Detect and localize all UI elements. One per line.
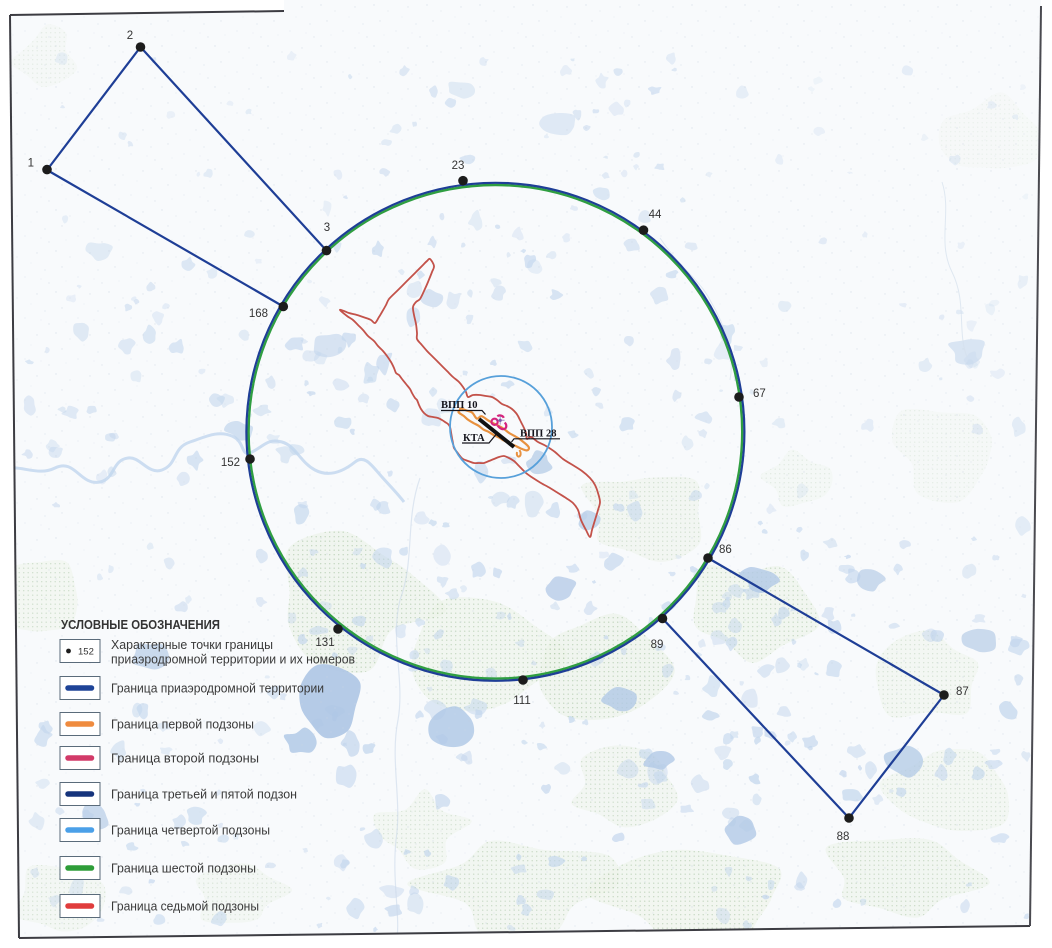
svg-text:23: 23 [452,160,465,172]
svg-text:152: 152 [78,647,94,658]
svg-text:87: 87 [956,686,969,698]
svg-text:КТА: КТА [463,433,485,444]
svg-text:ВПП 10: ВПП 10 [441,400,477,411]
svg-text:приаэродромной территории и их: приаэродромной территории и их номеров [111,653,355,667]
svg-text:Граница первой подзоны: Граница первой подзоны [111,718,254,732]
svg-text:1: 1 [28,158,34,170]
svg-text:89: 89 [651,639,664,651]
svg-text:111: 111 [513,695,530,707]
svg-text:Граница приаэродромной террито: Граница приаэродромной территории [111,682,324,696]
svg-text:44: 44 [649,209,662,221]
svg-text:УСЛОВНЫЕ ОБОЗНАЧЕНИЯ: УСЛОВНЫЕ ОБОЗНАЧЕНИЯ [61,617,220,632]
svg-text:Граница третьей и пятой подзон: Граница третьей и пятой подзон [111,788,297,802]
svg-text:Граница шестой подзоны: Граница шестой подзоны [111,862,256,876]
svg-text:Граница второй подзоны: Граница второй подзоны [111,752,259,766]
svg-text:Характерные точки границы: Характерные точки границы [111,638,273,652]
svg-text:Граница седьмой подзоны: Граница седьмой подзоны [111,900,259,914]
svg-text:3: 3 [324,222,330,234]
svg-text:ВПП 28: ВПП 28 [520,429,556,440]
svg-text:2: 2 [127,30,133,42]
svg-text:131: 131 [315,637,334,649]
svg-text:Граница четвертой подзоны: Граница четвертой подзоны [111,824,270,838]
svg-text:88: 88 [837,831,850,843]
svg-text:168: 168 [249,308,268,320]
svg-text:152: 152 [221,457,240,469]
svg-text:86: 86 [719,544,732,556]
svg-text:67: 67 [753,388,766,400]
